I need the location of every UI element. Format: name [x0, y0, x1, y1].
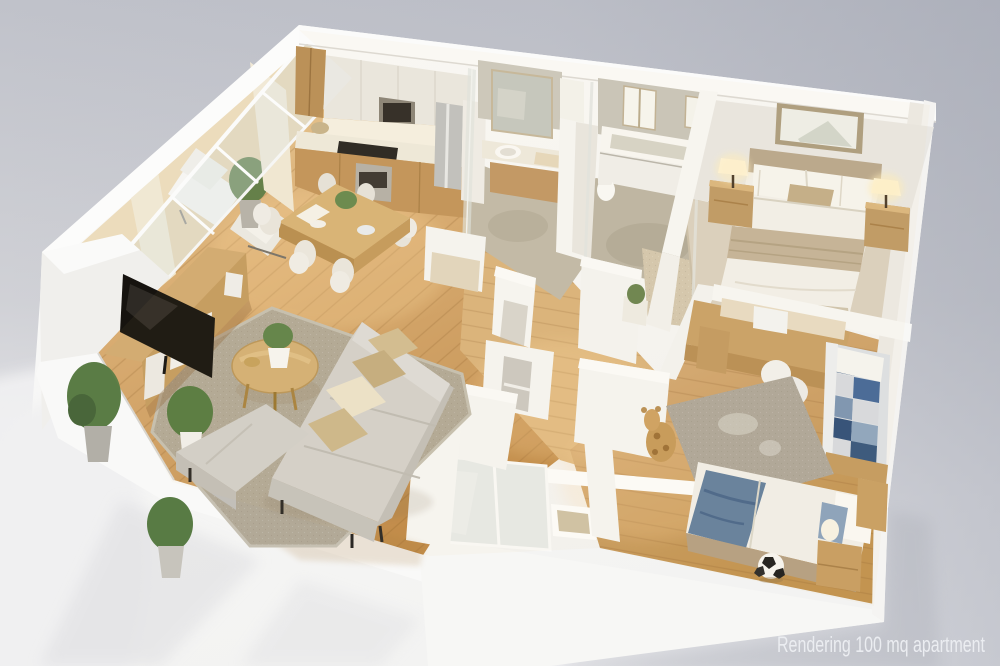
svg-text:Rendering 100 mq apartment: Rendering 100 mq apartment: [777, 632, 985, 657]
